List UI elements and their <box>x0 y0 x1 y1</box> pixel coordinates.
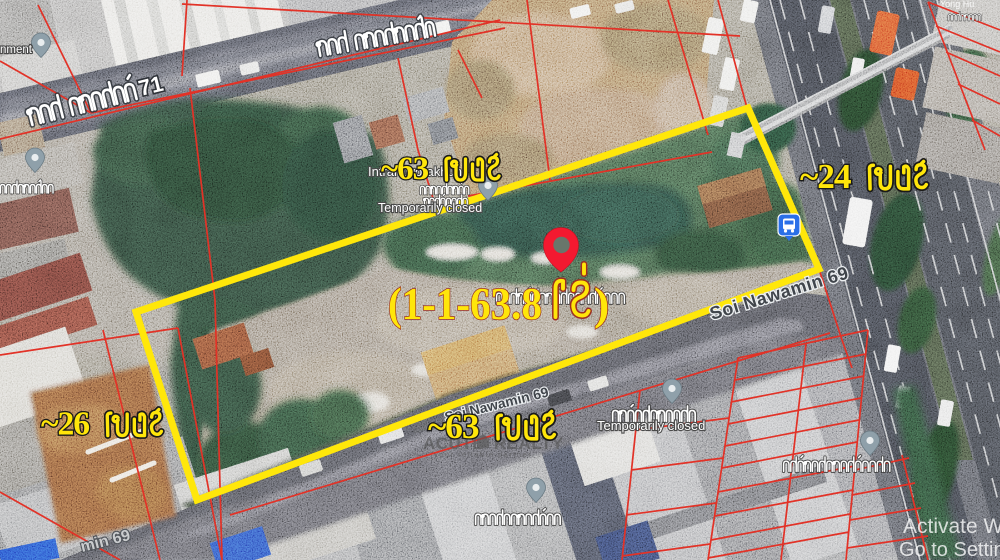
svg-text:your reliable partner: your reliable partner <box>434 450 532 459</box>
svg-text:Go to Settings: Go to Settings <box>899 539 1000 560</box>
svg-text:Temporarily closed: Temporarily closed <box>378 201 482 215</box>
svg-text:~24: ~24 <box>800 157 851 196</box>
svg-text:~26: ~26 <box>41 406 89 443</box>
svg-text:nment: nment <box>0 44 33 56</box>
svg-text:Activate W: Activate W <box>903 515 1000 538</box>
svg-text:Temporarily closed: Temporarily closed <box>597 418 705 433</box>
svg-text:(1-1-63.8: (1-1-63.8 <box>388 278 542 329</box>
svg-text:~63: ~63 <box>428 407 479 446</box>
svg-text:): ) <box>594 278 609 329</box>
svg-text:~63: ~63 <box>381 151 429 187</box>
svg-text:Yong Hu: Yong Hu <box>940 0 974 9</box>
